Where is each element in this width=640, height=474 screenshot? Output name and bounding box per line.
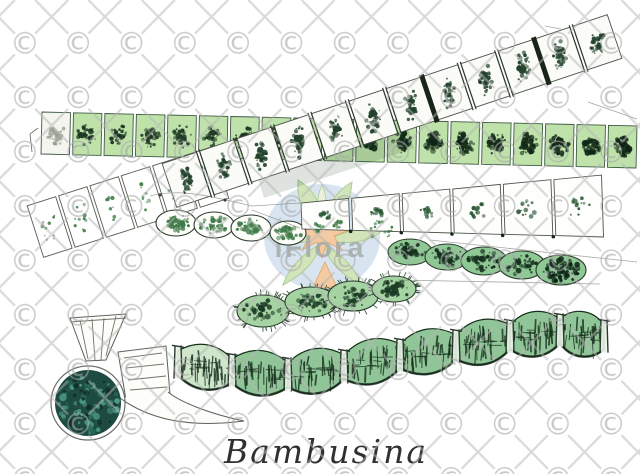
watermark-overlay bbox=[0, 0, 640, 474]
illustration-svg: © iFlora bbox=[0, 0, 640, 474]
watermarked-stock-illustration: © iFlora bbox=[0, 0, 640, 474]
